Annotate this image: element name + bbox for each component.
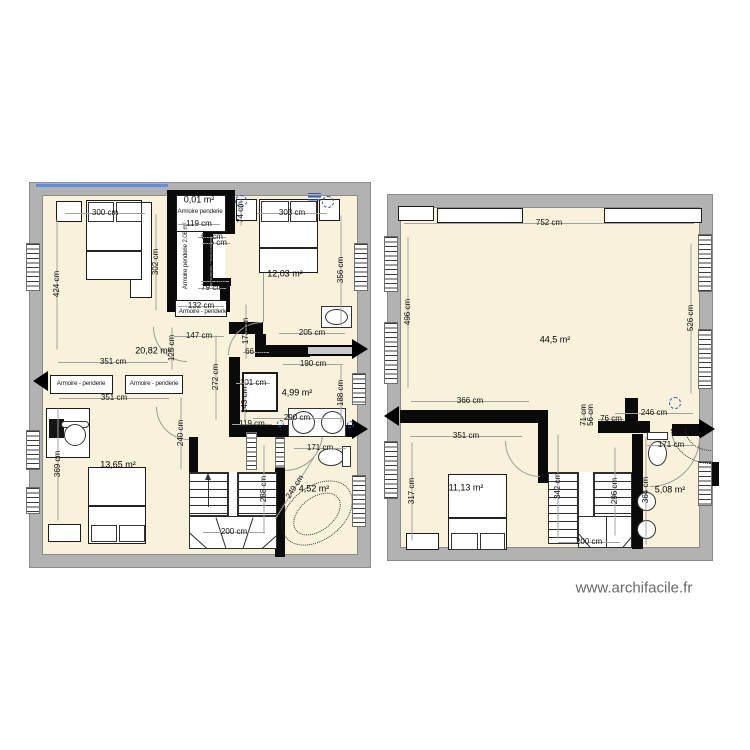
window xyxy=(437,208,523,223)
toilet-tank xyxy=(342,446,351,467)
nightstand xyxy=(406,533,439,550)
nightstand xyxy=(48,524,81,542)
window xyxy=(352,475,366,527)
wall-segment xyxy=(266,345,310,357)
stair-winders xyxy=(578,516,632,548)
sink xyxy=(637,492,656,511)
wardrobe xyxy=(175,300,227,317)
stair-stringer xyxy=(228,472,238,516)
window xyxy=(698,461,712,506)
shower xyxy=(242,372,278,412)
toilet xyxy=(648,441,667,466)
window xyxy=(384,236,398,292)
stair-direction-line xyxy=(208,479,209,507)
stair-flight xyxy=(548,472,578,544)
ceiling-light-icon xyxy=(235,195,247,207)
nightstand xyxy=(56,201,82,222)
washbasin xyxy=(325,309,348,325)
selected-wall-highlight xyxy=(36,184,168,187)
window xyxy=(384,322,398,384)
toilet xyxy=(318,448,344,466)
plumbing-point-icon xyxy=(277,420,284,427)
plumbing-point-icon xyxy=(347,421,354,428)
wall-segment xyxy=(203,226,213,286)
sink xyxy=(321,411,344,434)
pillow xyxy=(261,201,289,222)
pillow xyxy=(480,533,505,550)
window xyxy=(698,329,712,389)
wardrobe xyxy=(176,195,226,232)
blanket-line xyxy=(448,517,507,519)
stair-winder-line xyxy=(621,523,632,548)
ceiling-light-icon xyxy=(669,397,681,409)
wardrobe xyxy=(125,375,183,394)
window xyxy=(354,243,368,291)
window xyxy=(398,206,434,221)
wall-opening xyxy=(308,345,352,356)
watermark: www.archifacile.fr xyxy=(576,580,693,597)
window xyxy=(698,234,712,292)
stair-winder-line xyxy=(260,526,277,549)
wardrobe xyxy=(50,375,113,394)
pillow xyxy=(91,525,117,542)
stair-winder-line xyxy=(189,526,209,549)
sink xyxy=(637,520,656,539)
window xyxy=(26,487,40,514)
blanket-line xyxy=(259,247,318,249)
door-slab xyxy=(246,432,257,470)
stair-winder-line xyxy=(242,518,253,549)
wall-segment xyxy=(189,437,198,475)
passage-arrow-icon xyxy=(33,371,48,391)
radiator-icon xyxy=(308,193,321,202)
passage-arrow-icon xyxy=(384,406,399,426)
pillow xyxy=(88,202,114,222)
stair-winder-line xyxy=(216,518,227,549)
window xyxy=(352,373,366,405)
blanket-line xyxy=(86,250,142,252)
wall-segment xyxy=(229,357,240,437)
toilet-tank xyxy=(647,432,668,440)
stair-direction-arrow-icon xyxy=(205,473,211,480)
blanket-line xyxy=(88,505,146,507)
passage-arrow-icon xyxy=(352,419,368,439)
passage-arrow-icon xyxy=(352,339,368,359)
wall-segment xyxy=(598,421,650,433)
door-slab xyxy=(275,437,285,468)
stair-flight xyxy=(238,472,277,516)
pillow xyxy=(119,525,145,542)
window xyxy=(26,243,40,291)
ceiling-light-icon xyxy=(322,196,334,208)
chair xyxy=(64,424,86,446)
stair-winders xyxy=(189,516,277,549)
sink xyxy=(292,411,315,434)
window xyxy=(604,208,702,223)
wall-segment xyxy=(400,410,548,423)
pillow xyxy=(290,201,317,222)
stair-winder-line xyxy=(578,523,592,548)
pillow xyxy=(451,533,478,550)
stair-flight xyxy=(594,472,632,520)
window xyxy=(384,441,398,499)
duct xyxy=(712,462,719,486)
floorplan-canvas: 0,01 m²12,03 m²20,82 m²4,99 m²13,65 m²4,… xyxy=(0,0,750,750)
stair-winder-line xyxy=(606,517,607,548)
stair-stringer xyxy=(578,472,594,520)
pillow xyxy=(116,202,142,222)
window xyxy=(26,430,40,470)
